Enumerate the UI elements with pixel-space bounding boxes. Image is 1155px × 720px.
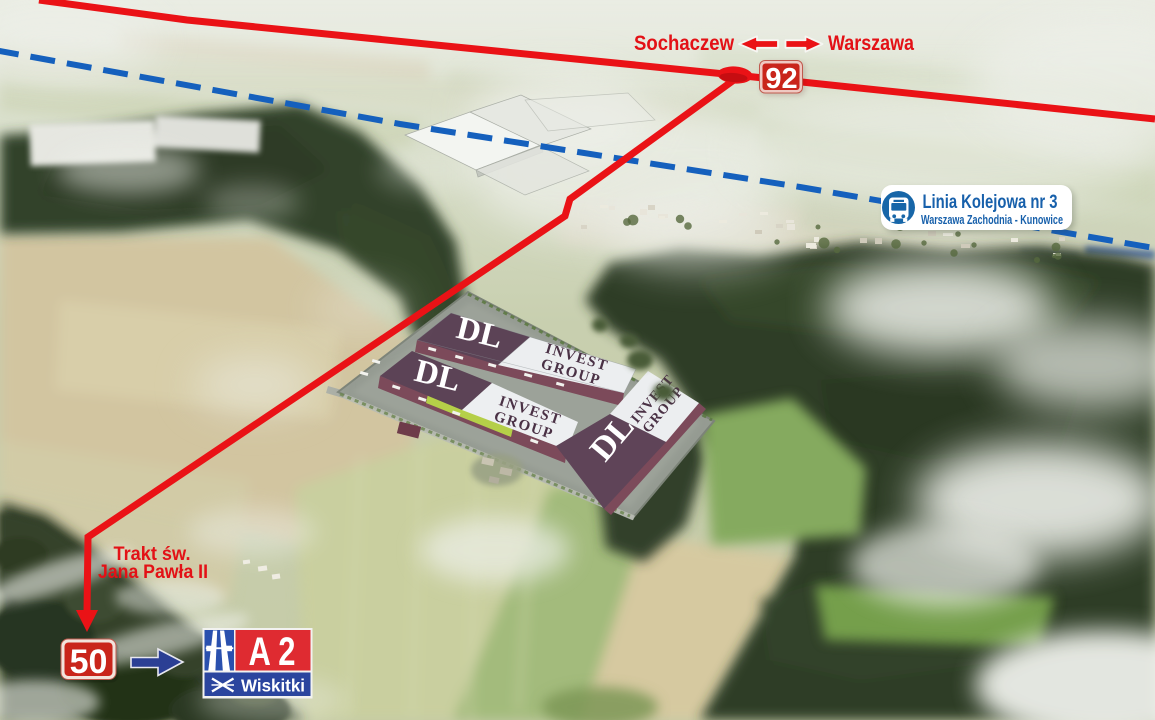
svg-text:92: 92 [765,63,797,95]
svg-text:Sochaczew: Sochaczew [634,32,735,55]
svg-text:A 2: A 2 [249,630,296,674]
svg-text:Linia Kolejowa nr 3: Linia Kolejowa nr 3 [923,192,1058,213]
svg-text:Warszawa: Warszawa [828,32,914,55]
svg-text:50: 50 [70,643,108,681]
svg-text:Wiskitki: Wiskitki [241,676,305,696]
svg-text:Warszawa Zachodnia - Kunowice: Warszawa Zachodnia - Kunowice [921,213,1063,227]
svg-text:Jana Pawła II: Jana Pawła II [98,562,208,583]
